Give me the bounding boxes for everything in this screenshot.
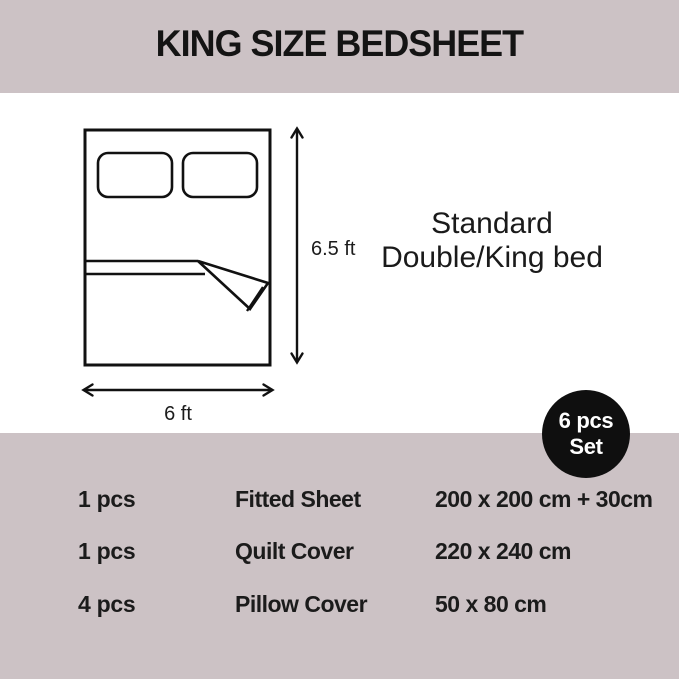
row-size: 200 x 200 cm + 30cm (435, 486, 653, 513)
pillow-right (183, 153, 257, 197)
table-row: 4 pcs Pillow Cover 50 x 80 cm (0, 591, 679, 619)
bed-type-caption: Standard Double/King bed (372, 207, 612, 275)
row-size: 220 x 240 cm (435, 538, 571, 565)
header-band: KING SIZE BEDSHEET (0, 0, 679, 93)
set-count-badge: 6 pcs Set (542, 390, 630, 478)
row-qty: 4 pcs (78, 591, 135, 618)
table-row: 1 pcs Fitted Sheet 200 x 200 cm + 30cm (0, 486, 679, 514)
height-arrow (292, 129, 303, 363)
row-item: Pillow Cover (235, 591, 367, 618)
diagram-section: 6.5 ft 6 ft Standard Double/King bed (0, 93, 679, 433)
row-item: Fitted Sheet (235, 486, 361, 513)
row-size: 50 x 80 cm (435, 591, 546, 618)
page-title: KING SIZE BEDSHEET (156, 23, 523, 71)
badge-count: 6 pcs (559, 408, 614, 434)
row-qty: 1 pcs (78, 538, 135, 565)
table-row: 1 pcs Quilt Cover 220 x 240 cm (0, 538, 679, 566)
height-label: 6.5 ft (311, 238, 356, 260)
badge-label: Set (569, 434, 602, 460)
pillow-left (98, 153, 172, 197)
row-qty: 1 pcs (78, 486, 135, 513)
row-item: Quilt Cover (235, 538, 353, 565)
bed-type-line1: Standard (372, 207, 612, 241)
bedsheet-infographic: KING SIZE BEDSHEET (0, 0, 679, 679)
width-arrow (84, 385, 273, 396)
bed-type-line2: Double/King bed (372, 241, 612, 275)
width-label: 6 ft (164, 403, 192, 425)
